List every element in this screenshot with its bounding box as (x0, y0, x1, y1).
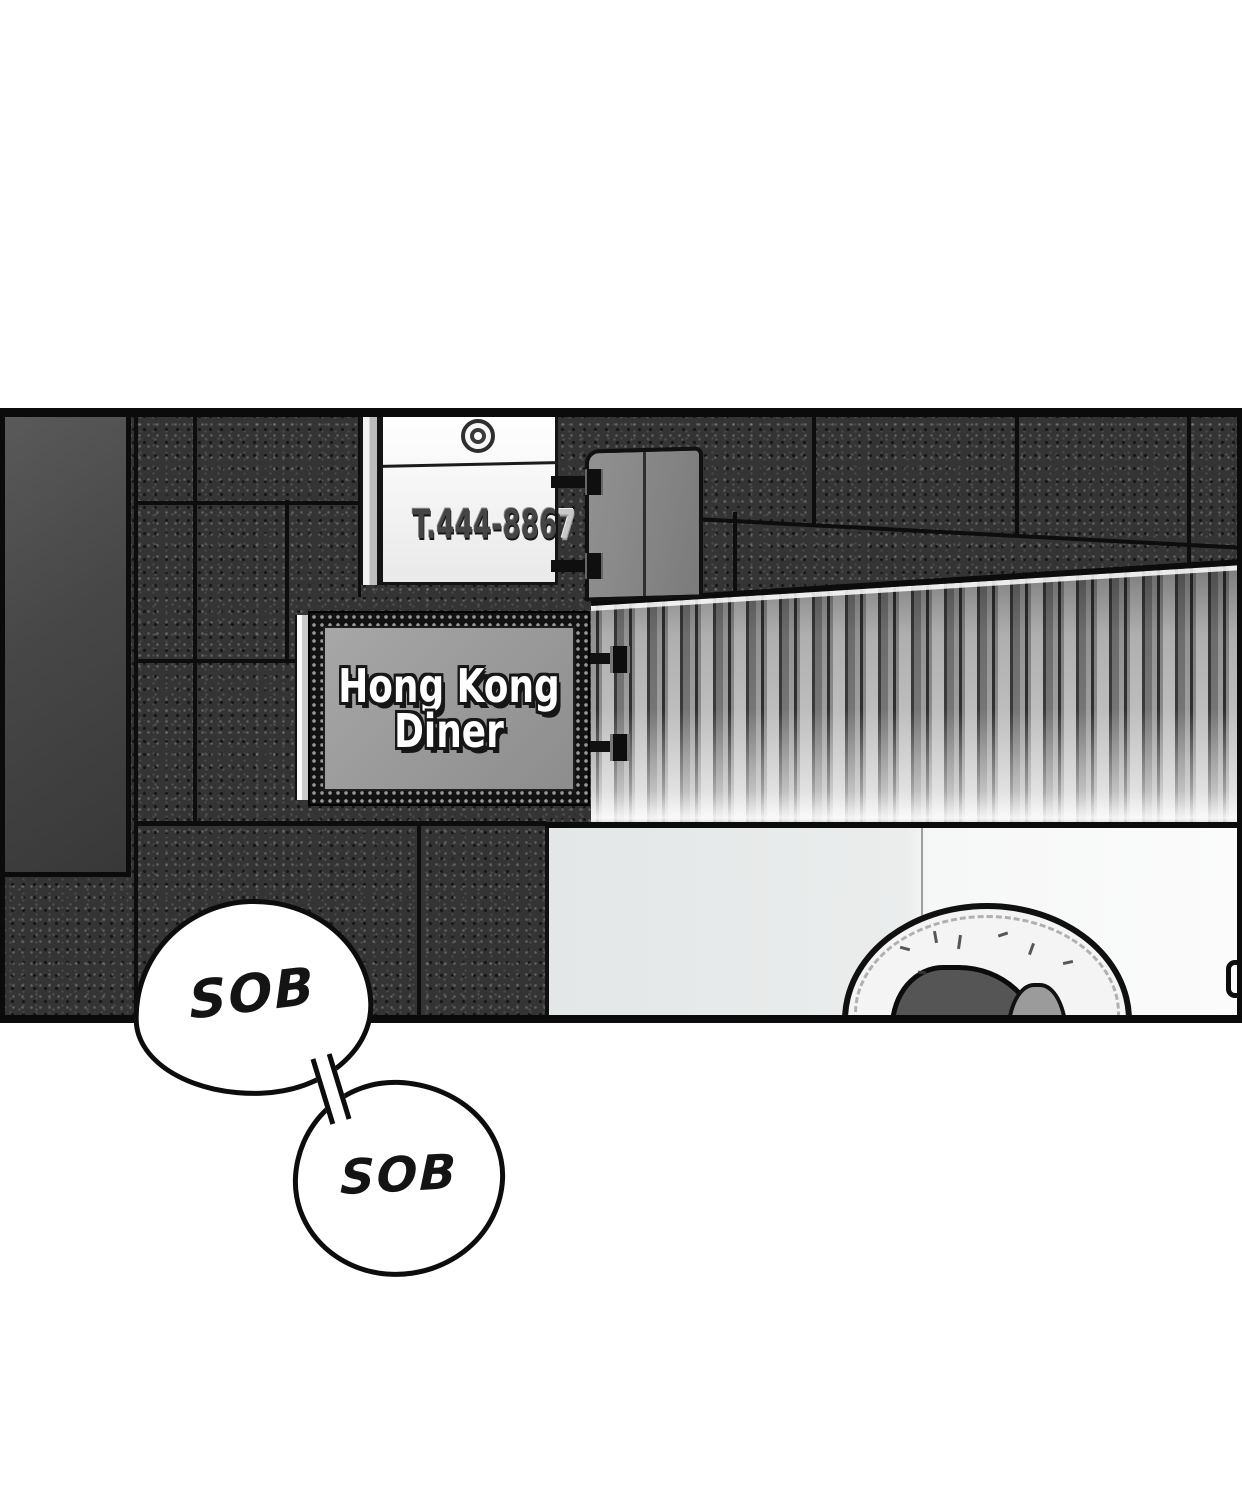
phone-number-faded-digit: 7 (557, 502, 575, 548)
grout-line-horizontal (134, 821, 546, 826)
grout-line-vertical (812, 417, 816, 527)
grout-line-vertical (134, 417, 138, 1015)
dome-object (842, 903, 1132, 1015)
speech-bubble-2-text: SOB (340, 1143, 459, 1213)
diner-sign-panel: Hong Kong Diner (323, 626, 575, 791)
dome-texture-mark (998, 932, 1008, 938)
sign-hanger-ring-center (470, 428, 486, 444)
diner-sign-arm-plate (610, 646, 630, 673)
dome-texture-mark (933, 931, 938, 943)
dome-texture-mark (1028, 943, 1035, 955)
phone-sign-side-edge (360, 413, 380, 585)
mounting-bracket (551, 560, 589, 572)
diner-sign-bulb-frame: Hong Kong Diner (308, 611, 590, 806)
diner-sign-line2: Diner (338, 709, 559, 754)
shutter-bottom-edge (545, 822, 1242, 828)
grout-line-horizontal (134, 501, 362, 505)
grout-line-horizontal (134, 659, 310, 663)
diner-sign-arm-plate (610, 734, 630, 761)
dome-texture-mark (918, 971, 926, 975)
grout-line-vertical (193, 417, 197, 826)
panel-border-top (0, 408, 1242, 417)
phone-number-sign: T.444-8867 (380, 413, 558, 585)
diner-sign-line1: Hong Kong (338, 664, 559, 709)
grout-line-vertical (285, 500, 289, 663)
comic-page: T.444-8867 Hong Kong Diner SOB SOB (0, 0, 1242, 1508)
speech-bubble-2: SOB (290, 1076, 509, 1280)
diner-sign-text: Hong Kong Diner (338, 664, 559, 754)
dome-texture-mark (957, 935, 962, 949)
dome-texture-mark (900, 946, 910, 951)
mounting-bracket-plate (585, 469, 603, 495)
grout-line-vertical (417, 826, 421, 1015)
storefront-counter-area (545, 828, 1238, 1015)
phone-number-text: T.444-8867 (412, 502, 526, 548)
phone-number-main: T.444-886 (412, 502, 557, 548)
grout-line-vertical (1015, 417, 1019, 537)
mounting-bracket-plate (585, 553, 603, 579)
panel-border-left (0, 408, 5, 1023)
panel-border-right (1237, 408, 1242, 1023)
phone-sign-divider (381, 461, 557, 468)
mounting-bracket (551, 476, 589, 488)
dome-texture-mark (1063, 960, 1073, 965)
speech-bubble-1-text: SOB (188, 956, 318, 1040)
grout-line-vertical (733, 512, 737, 596)
dark-doorway (0, 415, 131, 877)
bubble-connector (311, 1053, 352, 1124)
